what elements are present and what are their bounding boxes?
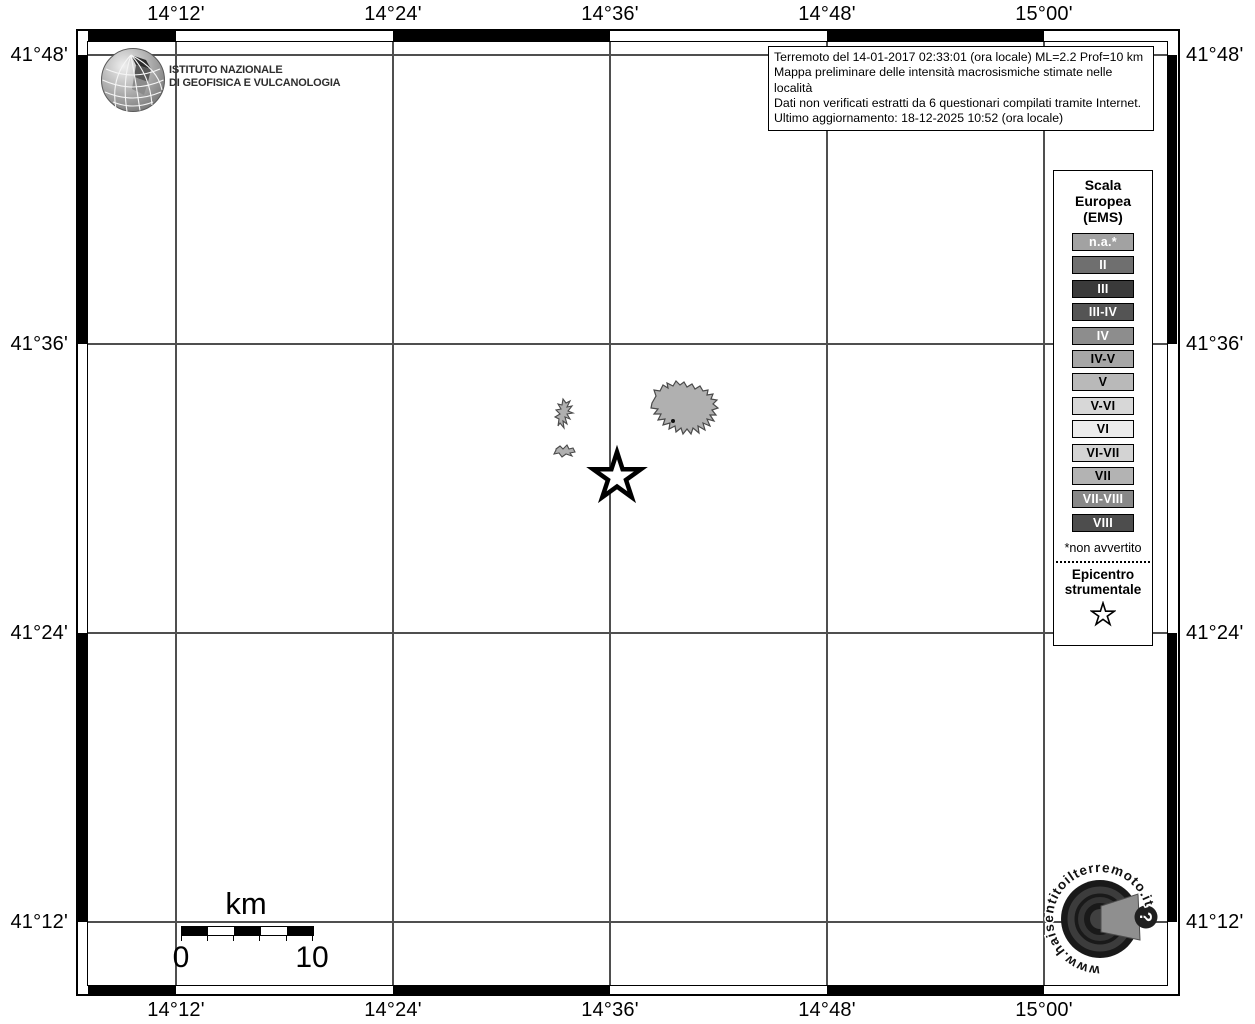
axis-label-top: 14°48' — [772, 3, 882, 26]
scalebar-tick — [207, 935, 208, 941]
axis-label-right: 41°48' — [1186, 44, 1255, 67]
legend-swatch-III-IV: III-IV — [1072, 303, 1134, 321]
frame-band-segment — [78, 55, 87, 344]
scalebar-segment — [208, 927, 234, 935]
axis-label-left: 41°12' — [0, 911, 68, 934]
haisentito-logo: ? www.haisentitoilterremoto.it — [1035, 854, 1165, 984]
frame-band-segment — [827, 31, 1044, 41]
legend-epicenter-label: Epicentro strumentale — [1054, 567, 1152, 598]
scalebar-segment — [287, 927, 313, 935]
frame-band-segment — [393, 986, 610, 995]
legend-title: Scala Europea (EMS) — [1054, 177, 1152, 225]
legend-swatch-V: V — [1072, 373, 1134, 391]
axis-label-left: 41°24' — [0, 622, 68, 645]
axis-label-bottom: 14°48' — [772, 999, 882, 1022]
axis-label-left: 41°48' — [0, 44, 68, 67]
legend-swatch-VII: VII — [1072, 467, 1134, 485]
axis-label-right: 41°36' — [1186, 333, 1255, 356]
axis-label-left: 41°36' — [0, 333, 68, 356]
info-line-map: Mappa preliminare delle intensità macros… — [774, 65, 1148, 96]
axis-label-top: 14°24' — [338, 3, 448, 26]
legend-swatch-IV-V: IV-V — [1072, 350, 1134, 368]
legend-swatch-VI: VI — [1072, 420, 1134, 438]
scalebar-end-label: 10 — [282, 941, 342, 975]
scalebar-start-label: 0 — [161, 941, 201, 975]
legend-epicenter-line: strumentale — [1054, 582, 1152, 598]
macroseismic-map-page: 14°12' 14°24' 14°36' 14°48' 15°00' 14°12… — [0, 0, 1255, 1024]
legend-title-line: Scala — [1054, 177, 1152, 193]
scalebar-tick — [259, 935, 260, 941]
axis-label-bottom: 14°36' — [555, 999, 665, 1022]
legend-swatch-IV: IV — [1072, 327, 1134, 345]
scalebar-tick — [233, 935, 234, 941]
frame-band-segment — [88, 31, 176, 41]
scalebar-segment — [234, 927, 260, 935]
legend-title-line: Europea — [1054, 193, 1152, 209]
frame-band-segment — [1168, 633, 1177, 922]
legend-swatch-n.a.*: n.a.* — [1072, 233, 1134, 251]
legend-footnote: *non avvertito — [1054, 541, 1152, 555]
frame-band-segment — [827, 986, 1044, 995]
axis-label-bottom: 15°00' — [989, 999, 1099, 1022]
legend-box: Scala Europea (EMS) n.a.*IIIIIIII-IVIVIV… — [1053, 170, 1153, 646]
frame-band-segment — [393, 31, 610, 41]
legend-items: n.a.*IIIIIIII-IVIVIV-VVV-VIVIVI-VIIVIIVI… — [1054, 233, 1152, 532]
legend-epicenter-star-icon — [1090, 601, 1116, 627]
legend-divider — [1056, 561, 1150, 563]
axis-label-top: 14°36' — [555, 3, 665, 26]
info-line-data: Dati non verificati estratti da 6 questi… — [774, 96, 1148, 111]
scalebar-segment — [261, 927, 287, 935]
axis-label-right: 41°24' — [1186, 622, 1255, 645]
axis-label-bottom: 14°24' — [338, 999, 448, 1022]
legend-swatch-V-VI: V-VI — [1072, 397, 1134, 415]
scalebar-segment — [182, 927, 208, 935]
scalebar-unit-label: km — [196, 886, 296, 922]
frame-band-segment — [1168, 55, 1177, 344]
axis-label-right: 41°12' — [1186, 911, 1255, 934]
frame-band-segment — [88, 986, 176, 995]
earthquake-info-box: Terremoto del 14-01-2017 02:33:01 (ora l… — [768, 46, 1154, 131]
legend-swatch-VII-VIII: VII-VIII — [1072, 490, 1134, 508]
ingv-name-line1: ISTITUTO NAZIONALE — [169, 64, 340, 77]
scalebar — [181, 926, 314, 936]
ingv-logo-text: ISTITUTO NAZIONALE DI GEOFISICA E VULCAN… — [169, 64, 340, 90]
axis-label-bottom: 14°12' — [121, 999, 231, 1022]
axis-label-top: 15°00' — [989, 3, 1099, 26]
legend-swatch-VI-VII: VI-VII — [1072, 444, 1134, 462]
ingv-name-line2: DI GEOFISICA E VULCANOLOGIA — [169, 77, 340, 90]
map-frame-inner — [87, 41, 1168, 986]
legend-title-line: (EMS) — [1054, 209, 1152, 225]
info-line-updated: Ultimo aggiornamento: 18-12-2025 10:52 (… — [774, 111, 1148, 126]
legend-swatch-III: III — [1072, 280, 1134, 298]
info-line-event: Terremoto del 14-01-2017 02:33:01 (ora l… — [774, 50, 1148, 65]
legend-swatch-VIII: VIII — [1072, 514, 1134, 532]
ingv-globe-icon — [100, 47, 166, 113]
frame-band-segment — [78, 633, 87, 922]
legend-swatch-II: II — [1072, 256, 1134, 274]
question-mark: ? — [1136, 911, 1155, 922]
axis-label-top: 14°12' — [121, 3, 231, 26]
legend-epicenter-line: Epicentro — [1054, 567, 1152, 583]
